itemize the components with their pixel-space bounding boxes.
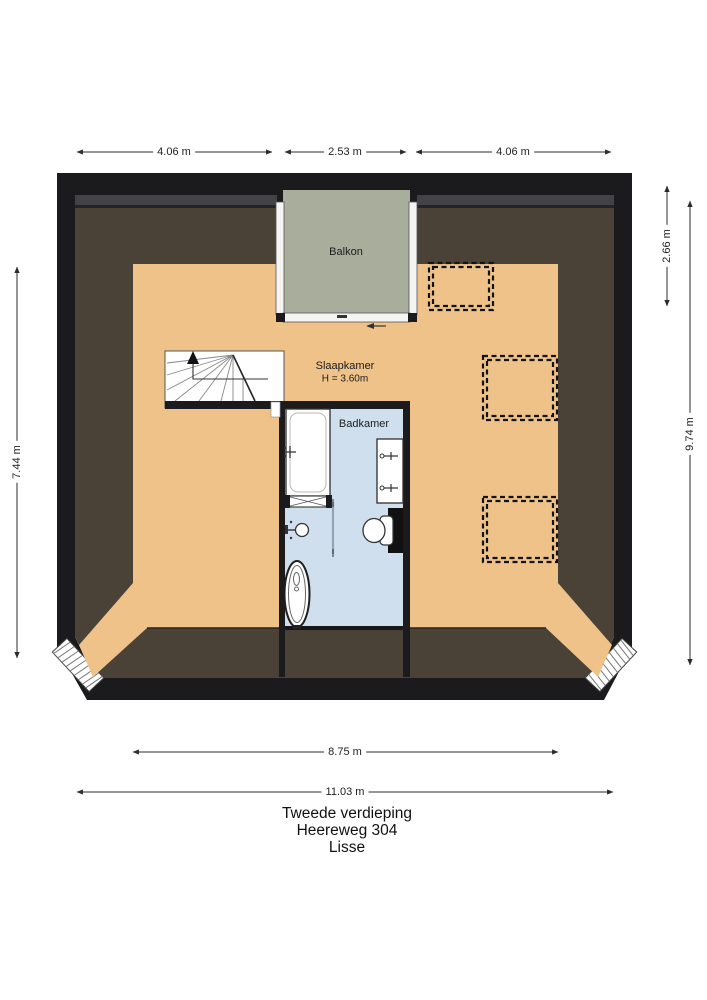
balcony-window-right [409,202,417,315]
bathroom-door-opening [271,402,280,417]
balcony-window-left [276,202,284,315]
floorplan-page: Balkon Slaapkamer H = 3.60m Badkamer 4.0… [0,0,707,1000]
address: Heereweg 304 [282,822,412,839]
dim-label-right-total: 9.74 m [684,413,696,455]
city: Lisse [282,839,412,856]
floor-title: Tweede verdieping [282,805,412,822]
title-block: Tweede verdieping Heereweg 304 Lisse [282,805,412,856]
room-label-balkon: Balkon [329,246,363,258]
ceiling-height-label: H = 3.60m [322,374,368,385]
dim-label-top-left: 4.06 m [153,146,195,158]
interior-wall-top [165,401,410,409]
radiator-shelf [284,495,332,508]
dim-label-left: 7.44 m [11,441,23,483]
washbasin-vanity [377,439,403,503]
dim-label-top-center: 2.53 m [324,146,366,158]
bathroom-wall-right [403,403,410,677]
dim-label-balcony-depth: 2.66 m [661,225,673,267]
bathtub [284,409,330,496]
dim-label-top-right: 4.06 m [492,146,534,158]
staircase [165,351,284,408]
freestanding-bathtub [285,561,310,629]
bathroom-wall-left [279,403,285,677]
room-label-badkamer: Badkamer [339,418,389,430]
dim-label-bottom-inner: 8.75 m [324,746,366,758]
dim-label-bottom-total: 11.03 m [322,786,369,798]
room-label-slaapkamer: Slaapkamer [316,360,375,372]
balcony-door-handle [337,315,347,318]
bathroom-wall-bottom [285,626,403,630]
